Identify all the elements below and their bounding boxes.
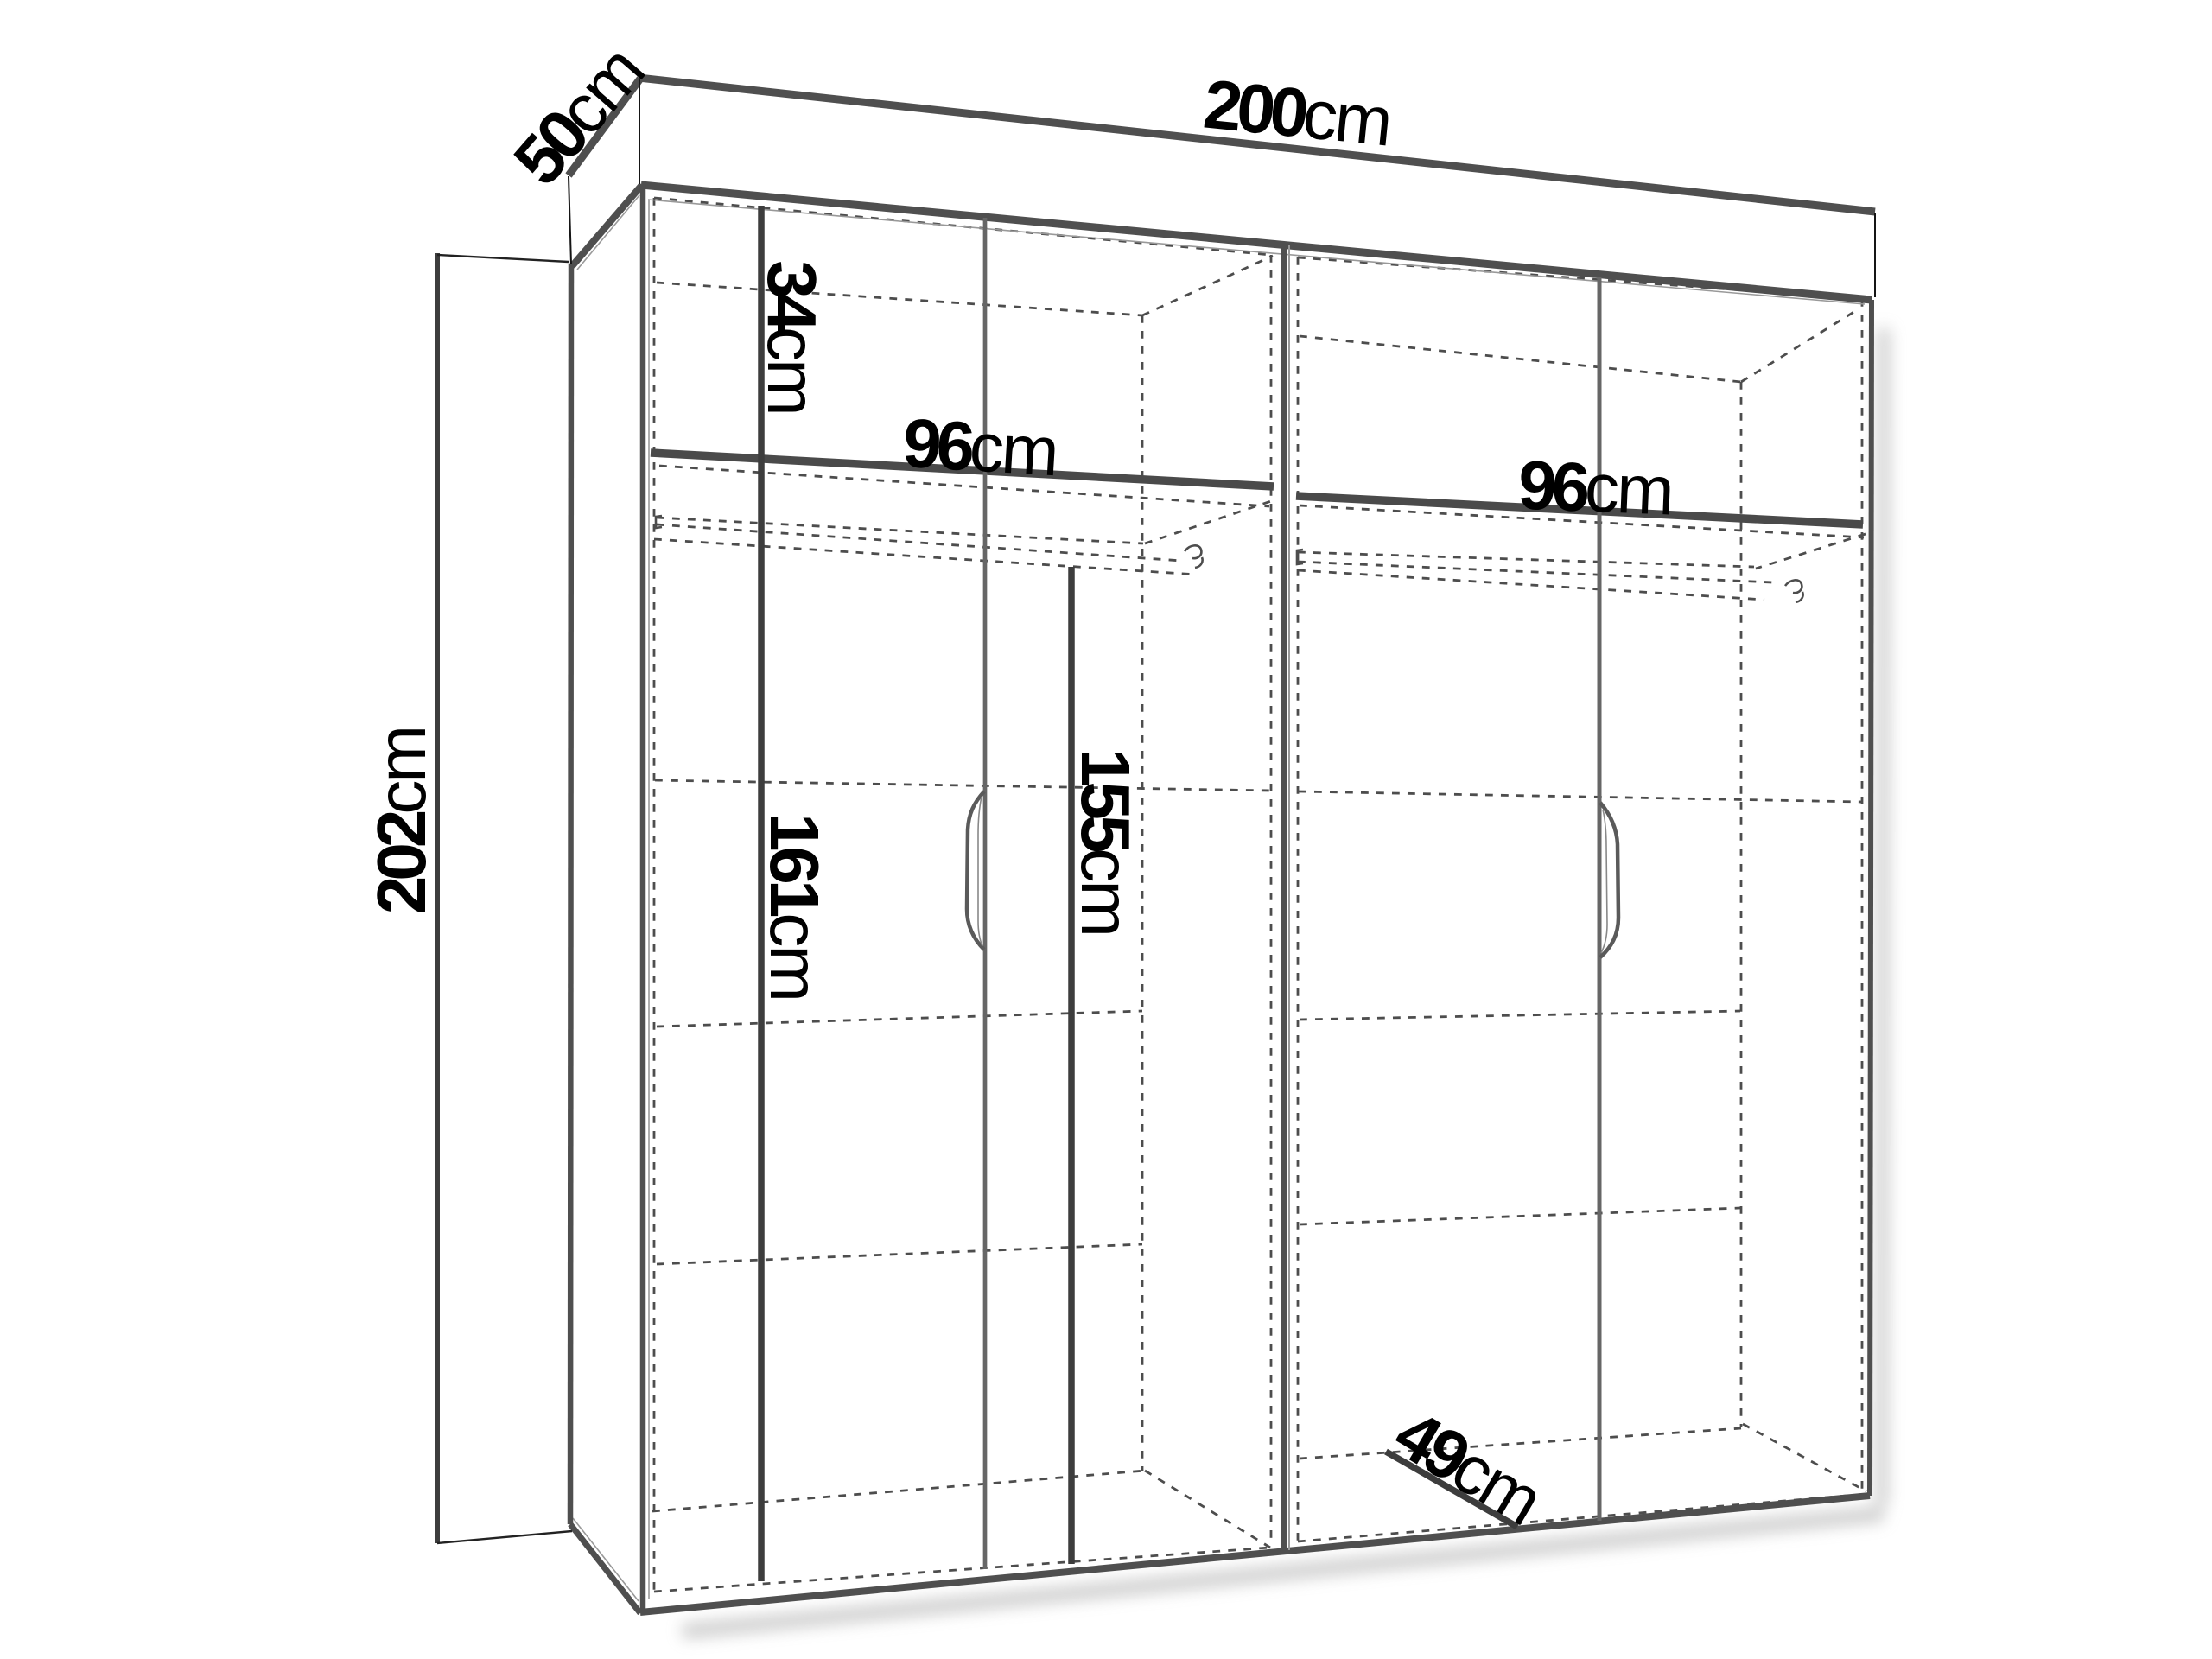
svg-text:155cm: 155cm [1068, 748, 1145, 935]
svg-text:161cm: 161cm [757, 813, 834, 1000]
svg-text:202cm: 202cm [363, 728, 440, 914]
svg-text:50cm: 50cm [499, 33, 658, 199]
svg-text:96cm: 96cm [901, 404, 1059, 489]
svg-text:34cm: 34cm [754, 260, 831, 414]
svg-text:49cm: 49cm [1382, 1394, 1554, 1538]
svg-text:96cm: 96cm [1516, 446, 1673, 529]
